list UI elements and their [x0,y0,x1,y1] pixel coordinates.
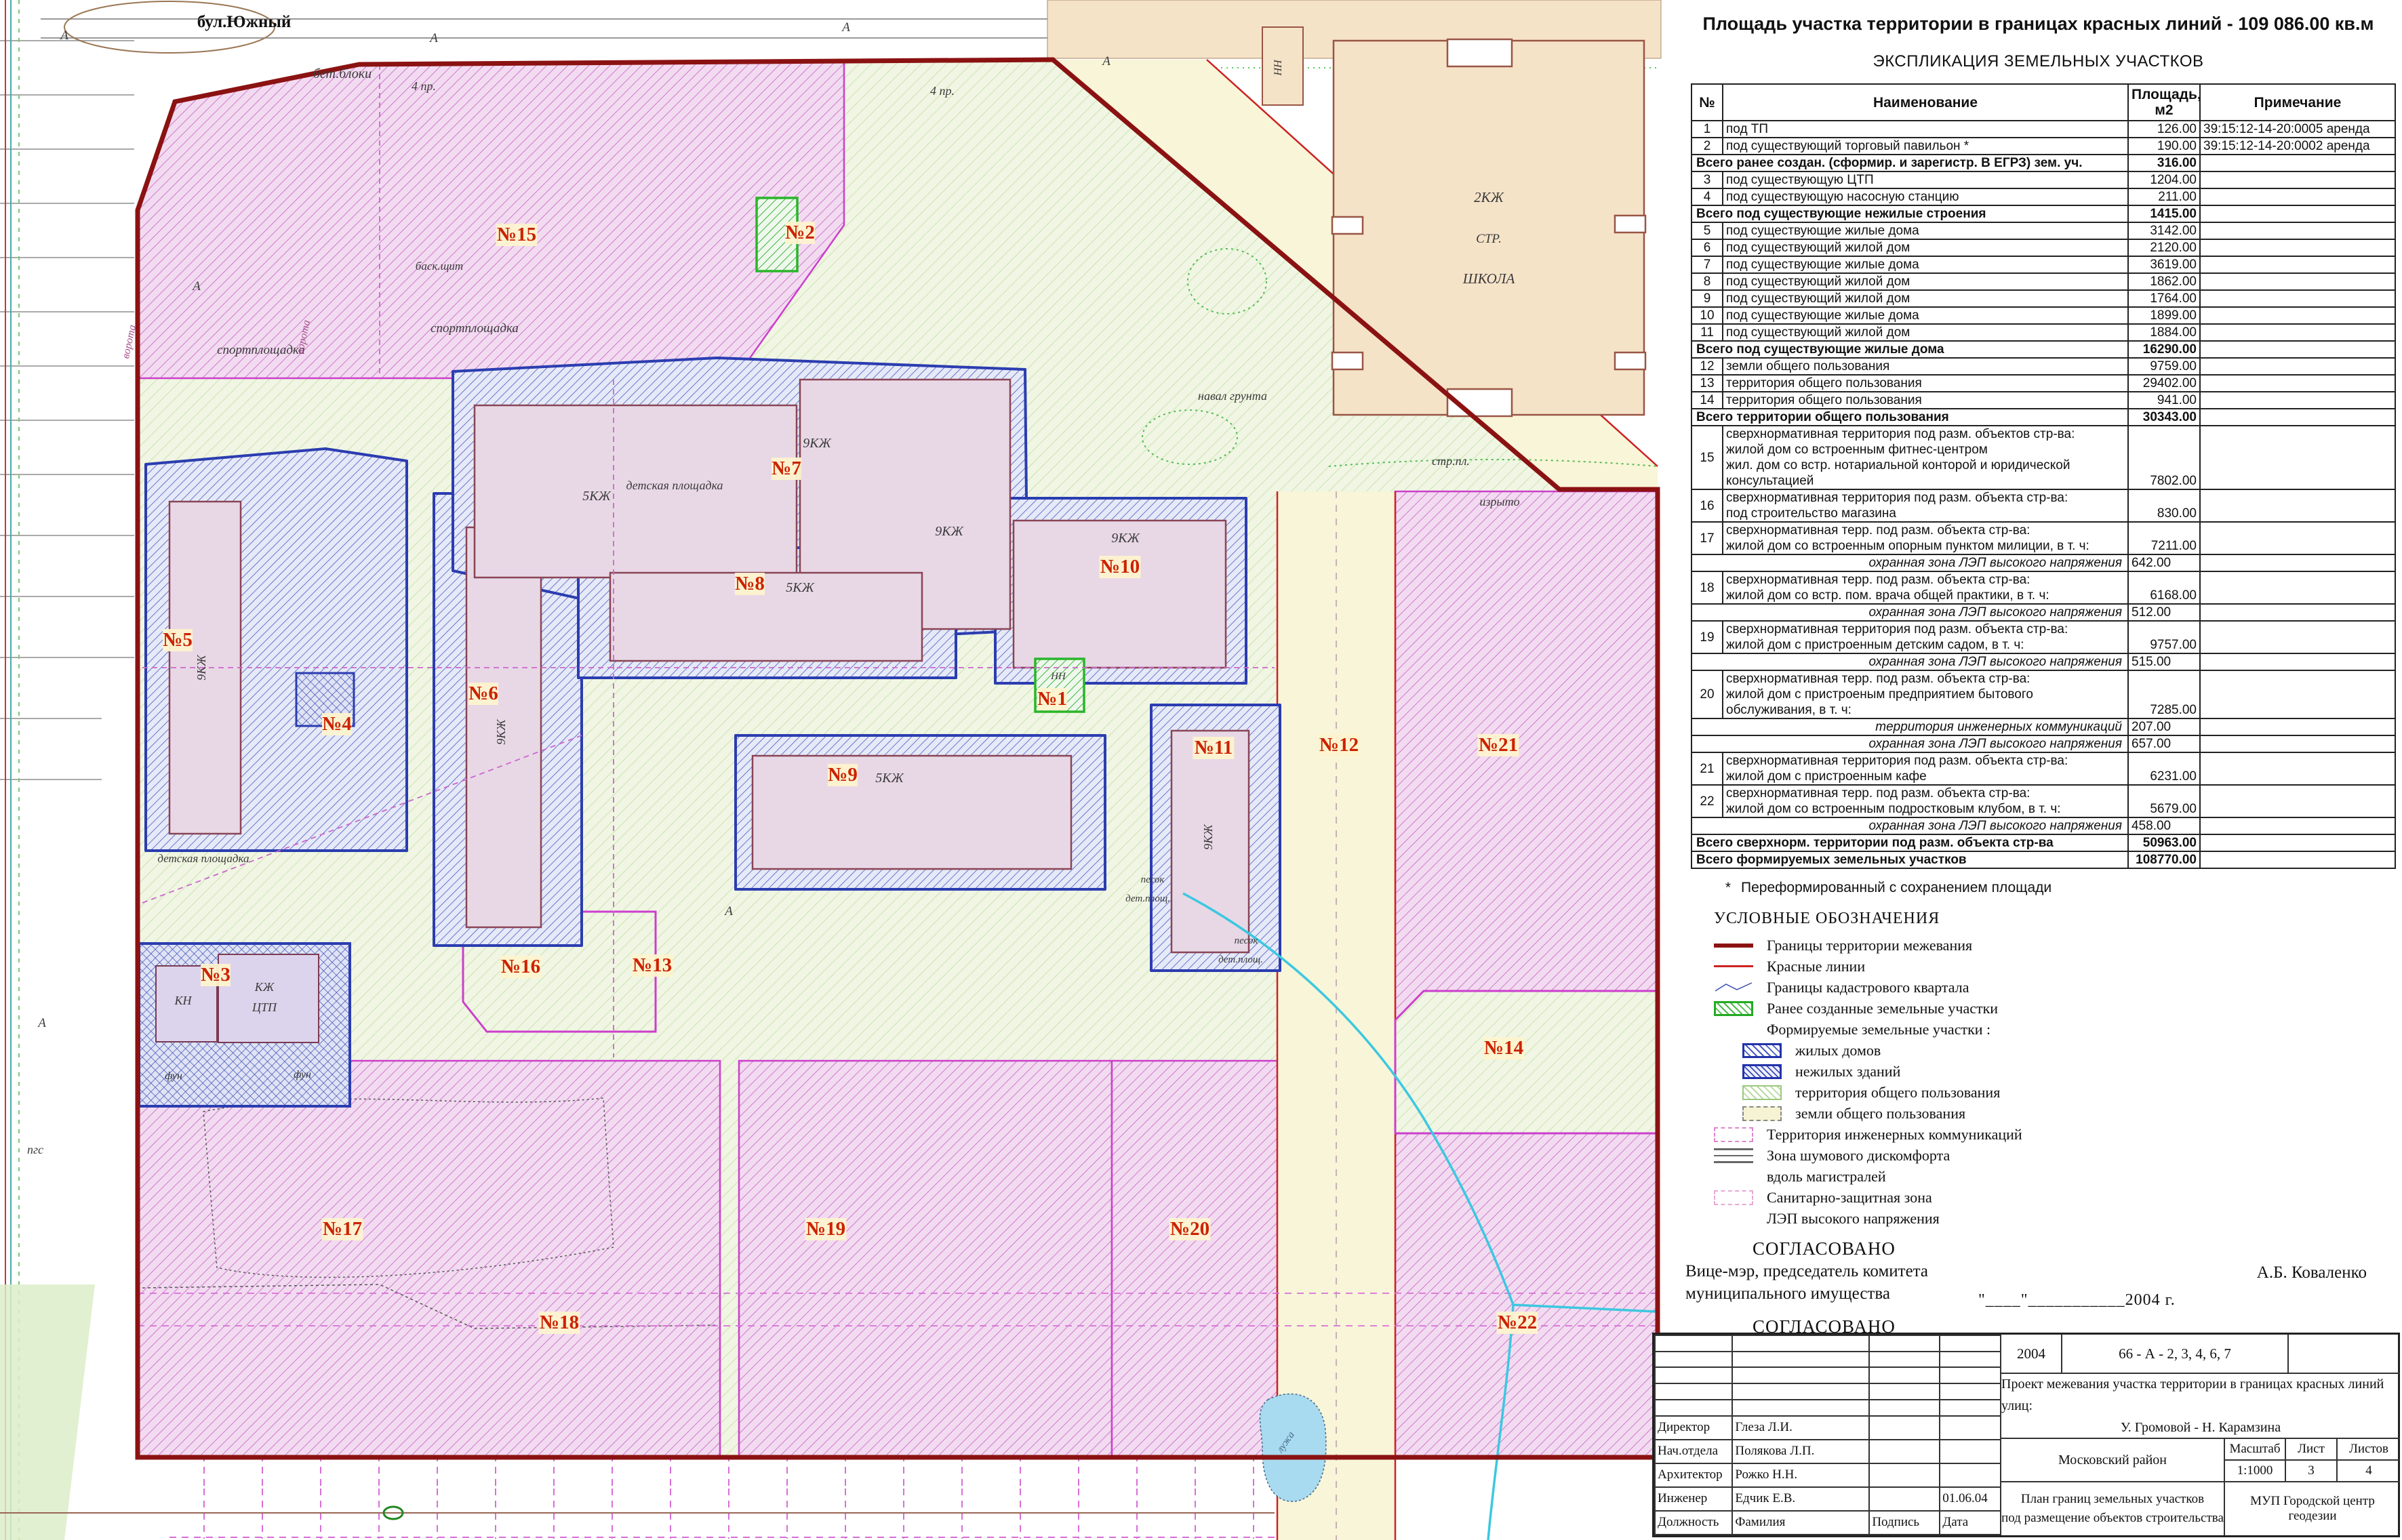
legend-label: Красные линии [1767,958,1865,975]
table-row: Всего формируемых земельных участков1087… [1692,851,2395,868]
table-row: Всего сверхнорм. территории под разм. об… [1692,834,2395,851]
parcel-22 [1395,1133,1658,1457]
approval-heading: СОГЛАСОВАНО [1753,1238,2402,1259]
map-text: 4 пр. [930,84,955,98]
legend-item: вдоль магистралей [1714,1166,2402,1187]
parcel-label-8: №8 [735,573,765,594]
legend-swatch-zigzag [1714,980,1753,995]
legend-label: территория общего пользования [1795,1084,2000,1101]
parcel-label-15: №15 [497,224,536,245]
map-text: СТР. [1476,232,1502,246]
table-row: 20сверхнормативная терр. под разм. объек… [1692,670,2395,718]
legend-label: Территория инженерных коммуникаций [1767,1126,2022,1143]
legend-item: Ранее созданные земельные участки [1714,998,2402,1019]
school-building [1332,39,1645,416]
parcel-label-4: №4 [322,713,352,735]
legend-swatch-pink-dash [1714,1127,1753,1142]
map-text: 9КЖ [195,654,208,681]
legend-swatch-blue-cross [1742,1064,1782,1079]
page-title: Площадь участка территории в границах кр… [1675,14,2402,35]
map-text: А [191,279,201,293]
approval-role: Вице-мэр, председатель комитета муниципа… [1685,1261,1977,1305]
legend-swatch-blue-hatch [1742,1043,1782,1058]
approval-name: А.Б. Коваленко [2257,1263,2367,1282]
table-row: Всего территории общего пользования30343… [1692,409,2395,426]
table-row: Всего ранее создан. (сформир. и зарегист… [1692,155,2395,171]
legend-item: Границы кадастрового квартала [1714,977,2402,998]
stamp-scale-grid: Масштаб Лист Листов 1:1000 3 4 [2225,1439,2400,1482]
stamp-empty-row [1655,1367,2001,1383]
stamp-role-row: Нач.отделаПолякова Л.П. [1655,1440,2001,1463]
legend-label: ЛЭП высокого напряжения [1767,1210,1940,1228]
stamp-role-row: АрхитекторРожко Н.Н. [1655,1463,2001,1487]
stamp-project-line2: У. Громовой - Н. Карамзина [2121,1417,2281,1438]
stamp-district: Московский район [2001,1439,2224,1482]
stamp-role-row: ДолжностьФамилияПодписьДата [1655,1511,2001,1535]
legend-swatch-yellow [1742,1106,1782,1121]
stamp-sheet-title-line2: под размещение объектов строительства [2001,1509,2224,1528]
stamp-project-title: Проект межевания участка территории в гр… [2001,1374,2400,1439]
legend-swatch-noise [1714,1148,1753,1163]
info-panel: Площадь участка территории в границах кр… [1675,0,2402,1540]
table-row: 17сверхнормативная терр. под разм. объек… [1692,522,2395,554]
parcel-label-20: №20 [1170,1218,1209,1240]
parcel-label-1: №1 [1037,688,1067,710]
parcel-label-13: №13 [633,954,672,976]
table-row: территория инженерных коммуникаций207.00 [1692,718,2395,735]
stamp-doc-number: 66 - А - 2, 3, 4, 6, 7 [2062,1335,2289,1373]
explication-table: № Наименование Площадь, м2 Примечание 1п… [1691,83,2396,869]
legend-label: вдоль магистралей [1767,1168,1886,1186]
parcel-label-17: №17 [323,1218,362,1240]
sheet: бул.Южныйбет.блоки4 пр.4 пр.АААААААспорт… [0,0,2402,1540]
table-row: 15сверхнормативная территория под разм. … [1692,426,2395,489]
table-row: охранная зона ЛЭП высокого напряжения512… [1692,604,2395,621]
legend-swatch-lgreen-hatch [1742,1085,1782,1100]
map-text: НН [1050,671,1066,682]
legend-item: Красные линии [1714,956,2402,977]
parcel-12-road [1277,491,1395,1540]
map-text: спортплощадка [431,321,519,336]
stamp-empty-cell [2289,1335,2400,1373]
legend-label: жилых домов [1795,1042,1881,1059]
col-header-note: Примечание [2200,84,2395,121]
site-plan-map: бул.Южныйбет.блоки4 пр.4 пр.АААААААспорт… [0,0,1688,1540]
legend-title: УСЛОВНЫЕ ОБОЗНАЧЕНИЯ [1714,910,2402,928]
parcel-label-7: №7 [772,458,801,479]
stamp-sheet-label: Лист [2286,1439,2338,1461]
map-text: ШКОЛА [1462,270,1515,287]
legend-item: Зона шумового дискомфорта [1714,1145,2402,1166]
legend-swatch-pink-dash2 [1714,1190,1753,1205]
map-text: стр.пл. [1432,454,1470,468]
stamp-sheets-label: Листов [2338,1439,2400,1461]
table-row: 19сверхнормативная территория под разм. … [1692,621,2395,653]
legend-item: нежилых зданий [1742,1061,2402,1082]
legend-label: земли общего пользования [1795,1105,1965,1122]
table-row: Всего под существующие жилые дома16290.0… [1692,341,2395,358]
legend-item: земли общего пользования [1742,1103,2402,1124]
stamp-year: 2004 [2001,1335,2062,1373]
stamp-empty-row [1655,1383,2001,1400]
table-row: 11под существующий жилой дом1884.00 [1692,324,2395,341]
table-row: 13территория общего пользования29402.00 [1692,375,2395,392]
legend-item: Территория инженерных коммуникаций [1714,1124,2402,1145]
footnote-star: * [1715,880,1741,896]
table-row: охранная зона ЛЭП высокого напряжения458… [1692,817,2395,834]
stamp-sheets-value: 4 [2338,1461,2400,1481]
legend-label: нежилых зданий [1795,1063,1900,1080]
legend-label: Санитарно-защитная зона [1767,1189,1932,1207]
map-text: детская площадка [626,479,723,492]
map-text: 2КЖ [1474,189,1504,205]
map-text: 9КЖ [1201,824,1215,850]
signature-table: ДиректорГлеза Л.И.Нач.отделаПолякова Л.П… [1654,1335,2001,1535]
sanitary-zone [169,1459,1277,1539]
legend-item: жилых домов [1742,1040,2402,1061]
footnote: *Переформированный с сохранением площади [1715,880,2402,896]
parcel-label-2: №2 [785,222,815,243]
title-block: ДиректорГлеза Л.И.Нач.отделаПолякова Л.П… [1652,1333,2400,1537]
legend-label: Зона шумового дискомфорта [1767,1147,1950,1164]
table-row: 2под существующий торговый павильон *190… [1692,138,2395,155]
parcel-label-3: №3 [201,964,231,986]
parcel-label-19: №19 [806,1218,845,1240]
map-text: изрыто [1479,495,1519,508]
table-row: 8под существующий жилой дом1862.00 [1692,273,2395,290]
stamp-scale-value: 1:1000 [2225,1461,2286,1481]
map-text: фун [294,1069,311,1080]
map-text: А [841,20,850,35]
map-text: 9КЖ [803,436,832,451]
legend-item: территория общего пользования [1742,1082,2402,1103]
legend-label: Границы территории межевания [1767,937,1972,954]
parcel-label-22: №22 [1498,1312,1537,1333]
legend-swatch-red-line [1714,965,1753,967]
table-row: 5под существующие жилые дома3142.00 [1692,222,2395,239]
map-text: пгс [27,1143,43,1156]
stamp-organization: МУП Городской центр геодезии [2225,1482,2400,1535]
legend-item: ЛЭП высокого напряжения [1714,1208,2402,1229]
parcel-label-10: №10 [1100,556,1140,577]
map-text: детская площадка [157,852,249,865]
map-text: КЖ [254,980,275,994]
map-text: песок [1235,935,1259,946]
stamp-project-line1: Проект межевания участка территории в гр… [2001,1373,2400,1417]
map-text: баск.щит [416,260,463,272]
table-title: ЭКСПЛИКАЦИЯ ЗЕМЕЛЬНЫХ УЧАСТКОВ [1675,52,2402,71]
parcel-19 [739,1061,1112,1457]
map-text: 9КЖ [494,718,508,745]
table-row: 14территория общего пользования941.00 [1692,392,2395,409]
approval-date-line: "____"___________2004 г. [1978,1291,2176,1310]
table-row: 1под ТП126.0039:15:12-14-20:0005 аренда [1692,121,2395,138]
map-text: НН [1273,59,1284,77]
table-row: 16сверхнормативная территория под разм. … [1692,489,2395,522]
parcel-label-9: №9 [828,764,858,786]
building [218,954,319,1042]
table-row: Всего под существующие нежилые строения1… [1692,205,2395,222]
legend: УСЛОВНЫЕ ОБОЗНАЧЕНИЯ Границы территории … [1714,910,2402,1229]
building [610,573,922,661]
map-text: А [37,1016,46,1030]
col-header-name: Наименование [1723,84,2128,121]
table-row: охранная зона ЛЭП высокого напряжения657… [1692,735,2395,752]
col-header-area: Площадь, м2 [2128,84,2200,121]
col-header-num: № [1692,84,1723,121]
stamp-sheet-value: 3 [2286,1461,2338,1481]
stamp-sheet-title-line1: План границ земельных участков [2021,1490,2204,1509]
map-text: песок [1141,874,1165,885]
map-text: спортплощадка [217,343,305,357]
legend-swatch-maroon-line [1714,944,1753,948]
approval-block: СОГЛАСОВАНО Вице-мэр, председатель комит… [1675,1238,2402,1312]
map-text: 9КЖ [1111,531,1140,546]
table-row: 3под существующую ЦТП1204.00 [1692,171,2395,188]
legend-label: Границы кадастрового квартала [1767,979,1969,996]
legend-item: Санитарно-защитная зона [1714,1187,2402,1208]
parcel-label-12: №12 [1319,734,1359,756]
map-text: дет.площ. [1218,954,1263,965]
map-text: А [1101,54,1110,68]
map-text: А [723,904,733,918]
stamp-scale-label: Масштаб [2225,1439,2286,1461]
map-text: 4 пр. [412,79,436,93]
legend-label: Ранее созданные земельные участки [1767,1000,1998,1017]
map-text: КН [174,994,193,1007]
parcel-label-14: №14 [1484,1037,1523,1059]
table-row: охранная зона ЛЭП высокого напряжения642… [1692,554,2395,571]
map-text: 5КЖ [582,489,612,504]
parcel-label-11: №11 [1195,737,1233,758]
table-header-row: № Наименование Площадь, м2 Примечание [1692,84,2395,121]
legend-swatch-green-hatch [1714,1001,1753,1016]
table-row: 10под существующие жилые дома1899.00 [1692,307,2395,324]
map-text: А [428,31,438,45]
stamp-empty-row [1655,1335,2001,1352]
map-text: 9КЖ [935,524,964,539]
map-text: А [59,28,68,43]
table-row: 7под существующие жилые дома3619.00 [1692,256,2395,273]
stamp-empty-row [1655,1400,2001,1416]
map-text: фун [165,1070,182,1082]
map-text: бет.блоки [313,66,372,81]
map-text: 5КЖ [786,580,815,595]
pond [1260,1394,1326,1501]
legend-item: Формируемые земельные участки : [1714,1019,2402,1040]
parcel-17 [138,1061,720,1457]
map-text: навал грунта [1198,389,1267,403]
stamp-role-row: ДиректорГлеза Л.И. [1655,1416,2001,1440]
map-text: бул.Южный [197,13,292,31]
legend-item: Границы территории межевания [1714,935,2402,956]
parcel-21 [1395,491,1658,1020]
parcel-label-21: №21 [1479,734,1518,756]
parcel-14 [1395,991,1658,1133]
parcel-label-16: №16 [501,956,540,977]
table-row: 4под существующую насосную станцию211.00 [1692,188,2395,205]
table-row: охранная зона ЛЭП высокого напряжения515… [1692,653,2395,670]
table-row: 12земли общего пользования9759.00 [1692,358,2395,375]
footnote-text: Переформированный с сохранением площади [1741,880,2051,895]
table-row: 22сверхнормативная терр. под разм. объек… [1692,785,2395,817]
table-row: 6под существующий жилой дом2120.00 [1692,239,2395,256]
map-text: дет.площ. [1125,893,1170,904]
stamp-role-row: ИнженерЕдчик Е.В.01.06.04 [1655,1487,2001,1511]
map-text: ЦТП [252,1000,277,1014]
parcel-label-18: №18 [540,1312,579,1333]
parcel-20 [1112,1061,1277,1457]
table-row: 18сверхнормативная терр. под разм. объек… [1692,571,2395,604]
map-text: 5КЖ [875,771,904,786]
stamp-empty-row [1655,1352,2001,1368]
parcel-label-6: №6 [468,683,498,704]
parcel-label-5: №5 [163,629,193,651]
table-row: 21сверхнормативная территория под разм. … [1692,752,2395,785]
stamp-sheet-title: План границ земельных участков под разме… [2001,1482,2224,1535]
legend-label: Формируемые земельные участки : [1767,1021,1990,1038]
table-row: 9под существующий жилой дом1764.00 [1692,290,2395,307]
building [753,756,1071,869]
